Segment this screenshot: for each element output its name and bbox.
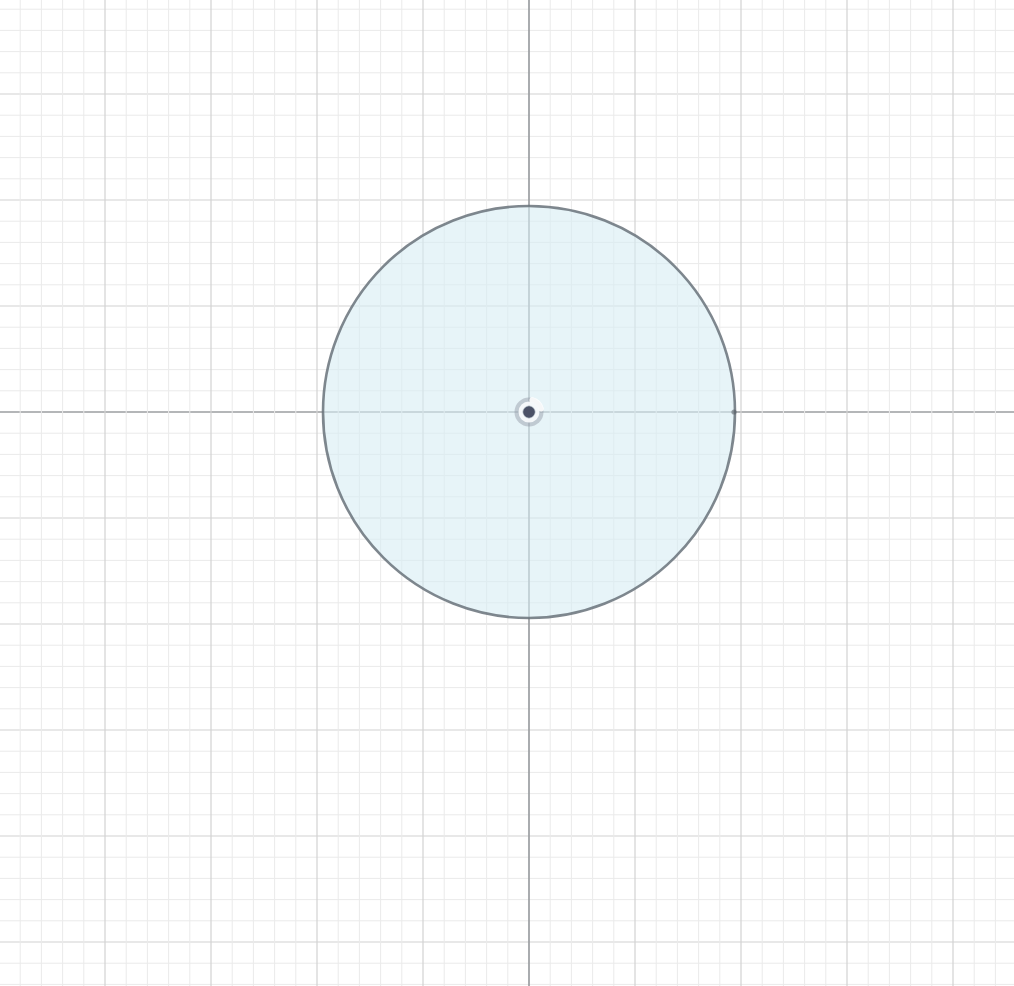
sketch-viewport[interactable] bbox=[0, 0, 1014, 986]
sketch-canvas[interactable] bbox=[0, 0, 1014, 986]
circle-quadrant-point[interactable] bbox=[731, 409, 736, 414]
origin-point[interactable] bbox=[523, 406, 535, 418]
